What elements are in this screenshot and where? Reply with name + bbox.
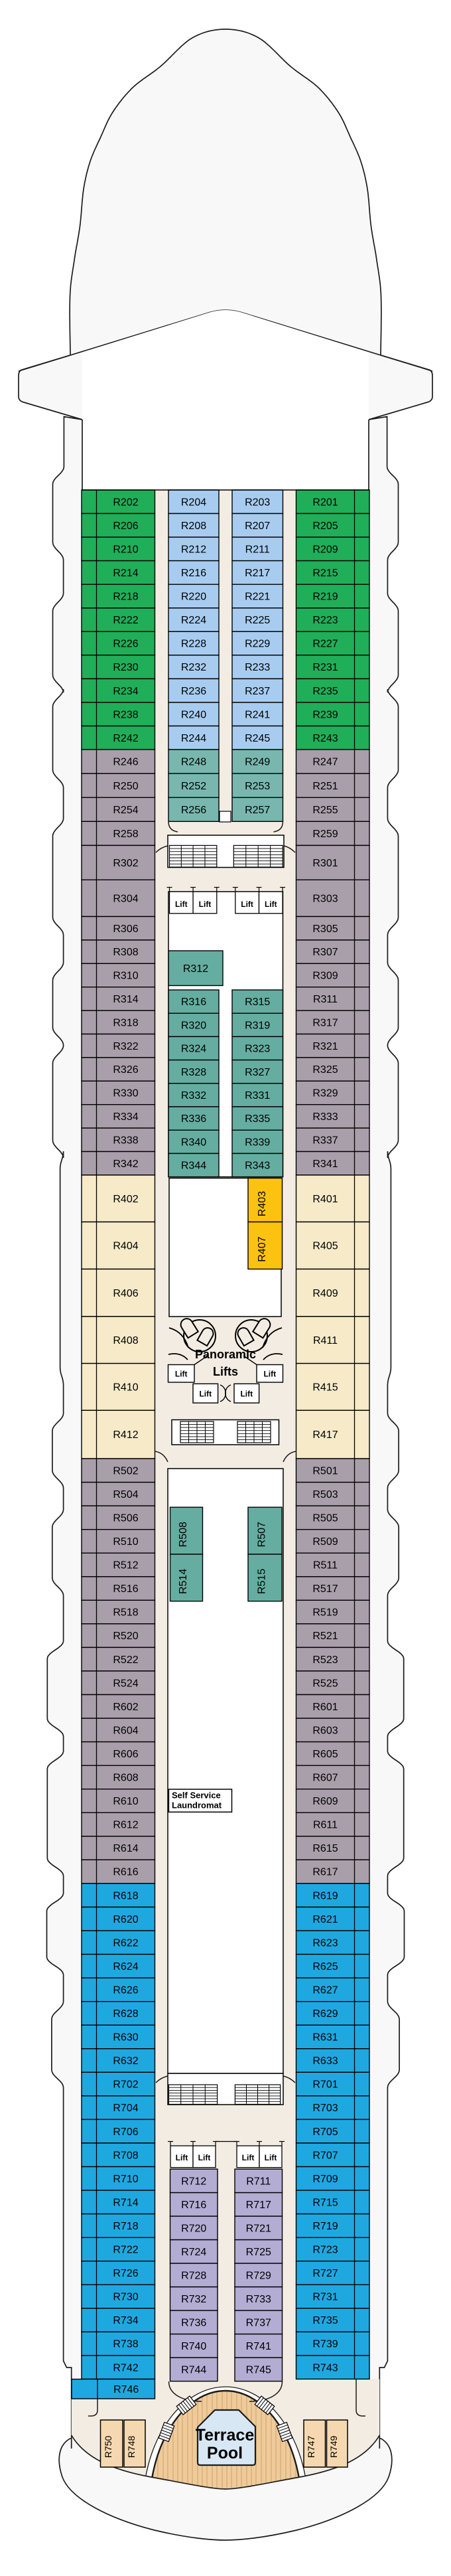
svg-text:R247: R247 [312,757,338,768]
svg-text:R243: R243 [312,733,338,744]
svg-text:R717: R717 [246,2200,271,2211]
svg-text:R409: R409 [312,1288,338,1299]
svg-text:R417: R417 [312,1429,338,1441]
svg-text:R503: R503 [312,1489,338,1500]
svg-text:R509: R509 [312,1536,338,1548]
svg-text:Lift: Lift [175,900,188,909]
svg-text:R604: R604 [113,1725,138,1736]
svg-text:Lift: Lift [175,1370,188,1379]
svg-text:R216: R216 [181,568,206,579]
svg-text:R524: R524 [113,1678,138,1689]
svg-text:R244: R244 [181,733,206,744]
svg-text:Lift: Lift [241,900,253,909]
svg-text:R602: R602 [113,1702,138,1713]
svg-text:R745: R745 [246,2364,271,2375]
svg-text:R242: R242 [113,733,138,744]
svg-text:R323: R323 [245,1044,270,1055]
svg-text:R622: R622 [113,1937,138,1949]
svg-text:R258: R258 [113,829,138,840]
svg-text:R511: R511 [313,1560,338,1571]
svg-text:R229: R229 [245,639,270,650]
svg-text:R408: R408 [113,1335,138,1346]
svg-text:R326: R326 [113,1064,138,1076]
svg-text:R624: R624 [113,1961,138,1972]
svg-text:R630: R630 [113,2032,138,2044]
svg-text:R226: R226 [113,639,138,650]
svg-text:R724: R724 [181,2247,206,2258]
svg-text:R230: R230 [113,662,138,673]
svg-text:R303: R303 [312,893,338,904]
svg-text:R235: R235 [312,686,338,697]
svg-text:R253: R253 [245,781,270,792]
svg-text:R316: R316 [181,997,206,1008]
svg-text:R726: R726 [113,2268,138,2279]
svg-text:R302: R302 [113,858,138,869]
svg-text:R735: R735 [312,2315,338,2326]
svg-text:R318: R318 [113,1017,138,1028]
svg-text:R259: R259 [312,829,338,840]
svg-text:R633: R633 [312,2055,338,2067]
svg-text:R403: R403 [257,1191,268,1216]
svg-text:R739: R739 [312,2339,338,2350]
svg-text:R725: R725 [246,2247,271,2258]
svg-text:R719: R719 [312,2221,338,2232]
svg-text:R237: R237 [245,686,270,697]
svg-text:R732: R732 [181,2294,206,2305]
svg-text:R626: R626 [113,1985,138,1996]
svg-text:R729: R729 [246,2270,271,2281]
svg-text:R401: R401 [312,1194,338,1205]
svg-text:R317: R317 [312,1017,338,1028]
svg-text:R714: R714 [113,2197,138,2208]
svg-text:R722: R722 [113,2245,138,2256]
svg-text:R747: R747 [306,2435,316,2458]
svg-text:R324: R324 [181,1044,206,1055]
svg-text:R340: R340 [181,1137,206,1148]
svg-text:R224: R224 [181,615,206,626]
svg-text:R322: R322 [113,1041,138,1052]
svg-text:R211: R211 [245,544,270,556]
svg-text:R307: R307 [312,947,338,958]
svg-text:R257: R257 [245,805,270,816]
svg-text:R607: R607 [312,1773,338,1784]
svg-text:R411: R411 [313,1335,338,1346]
svg-text:R222: R222 [113,615,138,626]
svg-text:R252: R252 [181,781,206,792]
svg-text:R342: R342 [113,1159,138,1170]
svg-text:R227: R227 [312,639,338,650]
svg-text:R620: R620 [113,1914,138,1925]
svg-text:R415: R415 [312,1382,338,1394]
svg-text:R718: R718 [113,2221,138,2232]
svg-text:R715: R715 [312,2197,338,2208]
svg-text:R210: R210 [113,544,138,556]
svg-text:R338: R338 [113,1135,138,1146]
svg-text:R704: R704 [113,2103,138,2114]
svg-text:R312: R312 [183,963,208,975]
svg-text:R517: R517 [312,1583,338,1595]
svg-text:R402: R402 [113,1194,138,1205]
svg-text:R220: R220 [181,592,206,603]
svg-text:Terrace: Terrace [196,2426,255,2445]
svg-text:R628: R628 [113,2008,138,2020]
svg-text:R337: R337 [312,1135,338,1146]
svg-text:R236: R236 [181,686,206,697]
svg-text:R341: R341 [312,1159,338,1170]
svg-text:R203: R203 [245,497,270,508]
svg-text:R720: R720 [181,2223,206,2234]
svg-text:R707: R707 [312,2150,338,2161]
svg-text:Lift: Lift [265,2153,277,2162]
svg-text:R746: R746 [113,2384,139,2395]
svg-text:R621: R621 [312,1914,338,1925]
svg-text:R218: R218 [113,592,138,603]
svg-text:R618: R618 [113,1890,138,1901]
svg-text:R306: R306 [113,924,138,935]
svg-text:R708: R708 [113,2150,138,2161]
svg-text:R223: R223 [312,615,338,626]
svg-text:R209: R209 [312,544,338,556]
svg-text:R221: R221 [245,592,270,603]
svg-text:R728: R728 [181,2270,206,2281]
svg-text:R309: R309 [312,971,338,982]
svg-text:R205: R205 [312,521,338,532]
svg-text:R627: R627 [312,1985,338,1996]
svg-text:R328: R328 [181,1067,206,1078]
svg-text:R612: R612 [113,1820,138,1831]
svg-text:R234: R234 [113,686,138,697]
svg-text:Lift: Lift [242,2153,255,2162]
svg-text:R632: R632 [113,2055,138,2067]
svg-text:R256: R256 [181,805,206,816]
svg-text:R501: R501 [312,1465,338,1477]
svg-text:R255: R255 [312,805,338,816]
svg-text:R333: R333 [312,1111,338,1123]
svg-text:R619: R619 [312,1890,338,1901]
svg-text:R336: R336 [181,1113,206,1125]
svg-text:R734: R734 [113,2315,138,2326]
svg-text:R238: R238 [113,709,138,720]
svg-text:R748: R748 [126,2435,137,2458]
svg-text:R750: R750 [103,2435,113,2458]
svg-text:R215: R215 [312,568,338,579]
svg-text:R623: R623 [312,1937,338,1949]
svg-text:R741: R741 [246,2341,271,2352]
svg-text:R710: R710 [113,2174,138,2185]
svg-text:R217: R217 [245,568,270,579]
svg-text:R232: R232 [181,662,206,673]
svg-text:R407: R407 [257,1236,268,1261]
svg-text:R743: R743 [312,2362,338,2374]
svg-text:R410: R410 [113,1382,138,1394]
svg-text:R711: R711 [246,2176,271,2187]
svg-text:R721: R721 [246,2223,271,2234]
svg-text:R344: R344 [181,1161,206,1172]
svg-text:R514: R514 [178,1569,189,1594]
svg-text:R727: R727 [312,2268,338,2279]
svg-text:R706: R706 [113,2127,138,2138]
svg-text:R518: R518 [113,1607,138,1619]
svg-text:R405: R405 [312,1241,338,1252]
svg-text:R712: R712 [181,2176,206,2187]
svg-text:R709: R709 [312,2174,338,2185]
svg-text:R631: R631 [312,2032,338,2044]
svg-text:R319: R319 [245,1020,270,1031]
svg-text:R343: R343 [245,1161,270,1172]
svg-text:R332: R332 [181,1090,206,1101]
svg-text:R516: R516 [113,1583,138,1595]
svg-text:Pool: Pool [207,2444,243,2462]
svg-text:R228: R228 [181,639,206,650]
svg-text:R744: R744 [181,2364,206,2375]
svg-text:R740: R740 [181,2341,206,2352]
svg-text:R505: R505 [312,1513,338,1524]
svg-text:R320: R320 [181,1020,206,1031]
svg-text:Lift: Lift [240,1390,253,1399]
svg-text:R723: R723 [312,2245,338,2256]
svg-text:R738: R738 [113,2339,138,2350]
svg-text:R506: R506 [113,1513,138,1524]
svg-text:R207: R207 [245,521,270,532]
svg-text:R250: R250 [113,781,138,792]
svg-text:R301: R301 [312,858,338,869]
svg-text:Lift: Lift [199,1390,212,1399]
svg-text:R315: R315 [245,997,270,1008]
svg-text:R327: R327 [245,1067,270,1078]
svg-text:Lifts: Lifts [213,1365,238,1378]
svg-text:R716: R716 [181,2200,206,2211]
svg-text:R603: R603 [312,1725,338,1736]
svg-text:R325: R325 [312,1064,338,1076]
svg-text:Lift: Lift [176,2153,188,2162]
svg-text:R617: R617 [312,1867,338,1878]
svg-text:R512: R512 [113,1560,138,1571]
svg-text:R525: R525 [312,1678,338,1689]
svg-text:R606: R606 [113,1749,138,1760]
svg-text:R522: R522 [113,1654,138,1666]
svg-text:Lift: Lift [198,2153,211,2162]
svg-text:R339: R339 [245,1137,270,1148]
svg-text:R249: R249 [245,757,270,768]
svg-text:Lift: Lift [265,900,277,909]
svg-text:R608: R608 [113,1773,138,1784]
svg-text:R504: R504 [113,1489,138,1500]
svg-text:R225: R225 [245,615,270,626]
svg-text:R204: R204 [181,497,206,508]
svg-text:R703: R703 [312,2103,338,2114]
svg-text:R609: R609 [312,1796,338,1807]
svg-text:R736: R736 [181,2317,206,2328]
svg-text:R321: R321 [312,1041,338,1052]
svg-text:R308: R308 [113,947,138,958]
svg-text:R219: R219 [312,592,338,603]
svg-text:R616: R616 [113,1867,138,1878]
svg-text:R251: R251 [312,781,338,792]
svg-text:R406: R406 [113,1288,138,1299]
svg-text:R231: R231 [312,662,338,673]
svg-text:R502: R502 [113,1465,138,1477]
svg-text:R733: R733 [246,2294,271,2305]
svg-text:Panoramic: Panoramic [195,1348,256,1361]
svg-text:R510: R510 [113,1536,138,1548]
svg-text:R519: R519 [312,1607,338,1619]
svg-text:R701: R701 [312,2079,338,2091]
svg-text:R331: R331 [245,1090,270,1101]
svg-text:R404: R404 [113,1241,138,1252]
svg-text:R212: R212 [181,544,206,556]
svg-text:R521: R521 [312,1631,338,1642]
svg-text:R523: R523 [312,1654,338,1666]
svg-text:R614: R614 [113,1843,138,1854]
svg-text:R254: R254 [113,805,138,816]
svg-text:R248: R248 [181,757,206,768]
svg-text:R730: R730 [113,2292,138,2303]
svg-text:R314: R314 [113,994,138,1005]
svg-text:R208: R208 [181,521,206,532]
svg-text:R245: R245 [245,733,270,744]
svg-text:R202: R202 [113,497,138,508]
svg-text:R233: R233 [245,662,270,673]
svg-text:Lift: Lift [199,900,212,909]
svg-text:R412: R412 [113,1429,138,1441]
svg-text:R240: R240 [181,709,206,720]
svg-text:R749: R749 [328,2435,339,2458]
svg-text:R601: R601 [312,1702,338,1713]
svg-text:Lift: Lift [263,1370,276,1379]
svg-text:R520: R520 [113,1631,138,1642]
svg-text:R731: R731 [312,2292,338,2303]
svg-text:Self Service: Self Service [172,1791,221,1801]
svg-text:R214: R214 [113,568,138,579]
svg-text:R334: R334 [113,1111,138,1123]
svg-text:R330: R330 [113,1088,138,1099]
svg-text:R507: R507 [257,1522,268,1547]
svg-text:R629: R629 [312,2008,338,2020]
svg-text:R310: R310 [113,971,138,982]
svg-text:Laundromat: Laundromat [172,1801,222,1811]
svg-text:R206: R206 [113,521,138,532]
svg-text:R241: R241 [245,709,270,720]
svg-text:R335: R335 [245,1113,270,1125]
svg-text:R304: R304 [113,893,138,904]
svg-text:R611: R611 [313,1820,338,1831]
svg-text:R246: R246 [113,757,138,768]
svg-text:R625: R625 [312,1961,338,1972]
svg-text:R610: R610 [113,1796,138,1807]
svg-text:R705: R705 [312,2127,338,2138]
svg-text:R702: R702 [113,2079,138,2091]
svg-text:R201: R201 [312,497,338,508]
svg-text:R742: R742 [113,2362,138,2374]
svg-text:R239: R239 [312,709,338,720]
svg-text:R311: R311 [313,994,338,1005]
svg-text:R515: R515 [257,1569,268,1594]
svg-text:R508: R508 [178,1522,189,1547]
svg-text:R305: R305 [312,924,338,935]
svg-text:R737: R737 [246,2317,271,2328]
svg-text:R615: R615 [312,1843,338,1854]
svg-text:R329: R329 [312,1088,338,1099]
svg-text:R605: R605 [312,1749,338,1760]
